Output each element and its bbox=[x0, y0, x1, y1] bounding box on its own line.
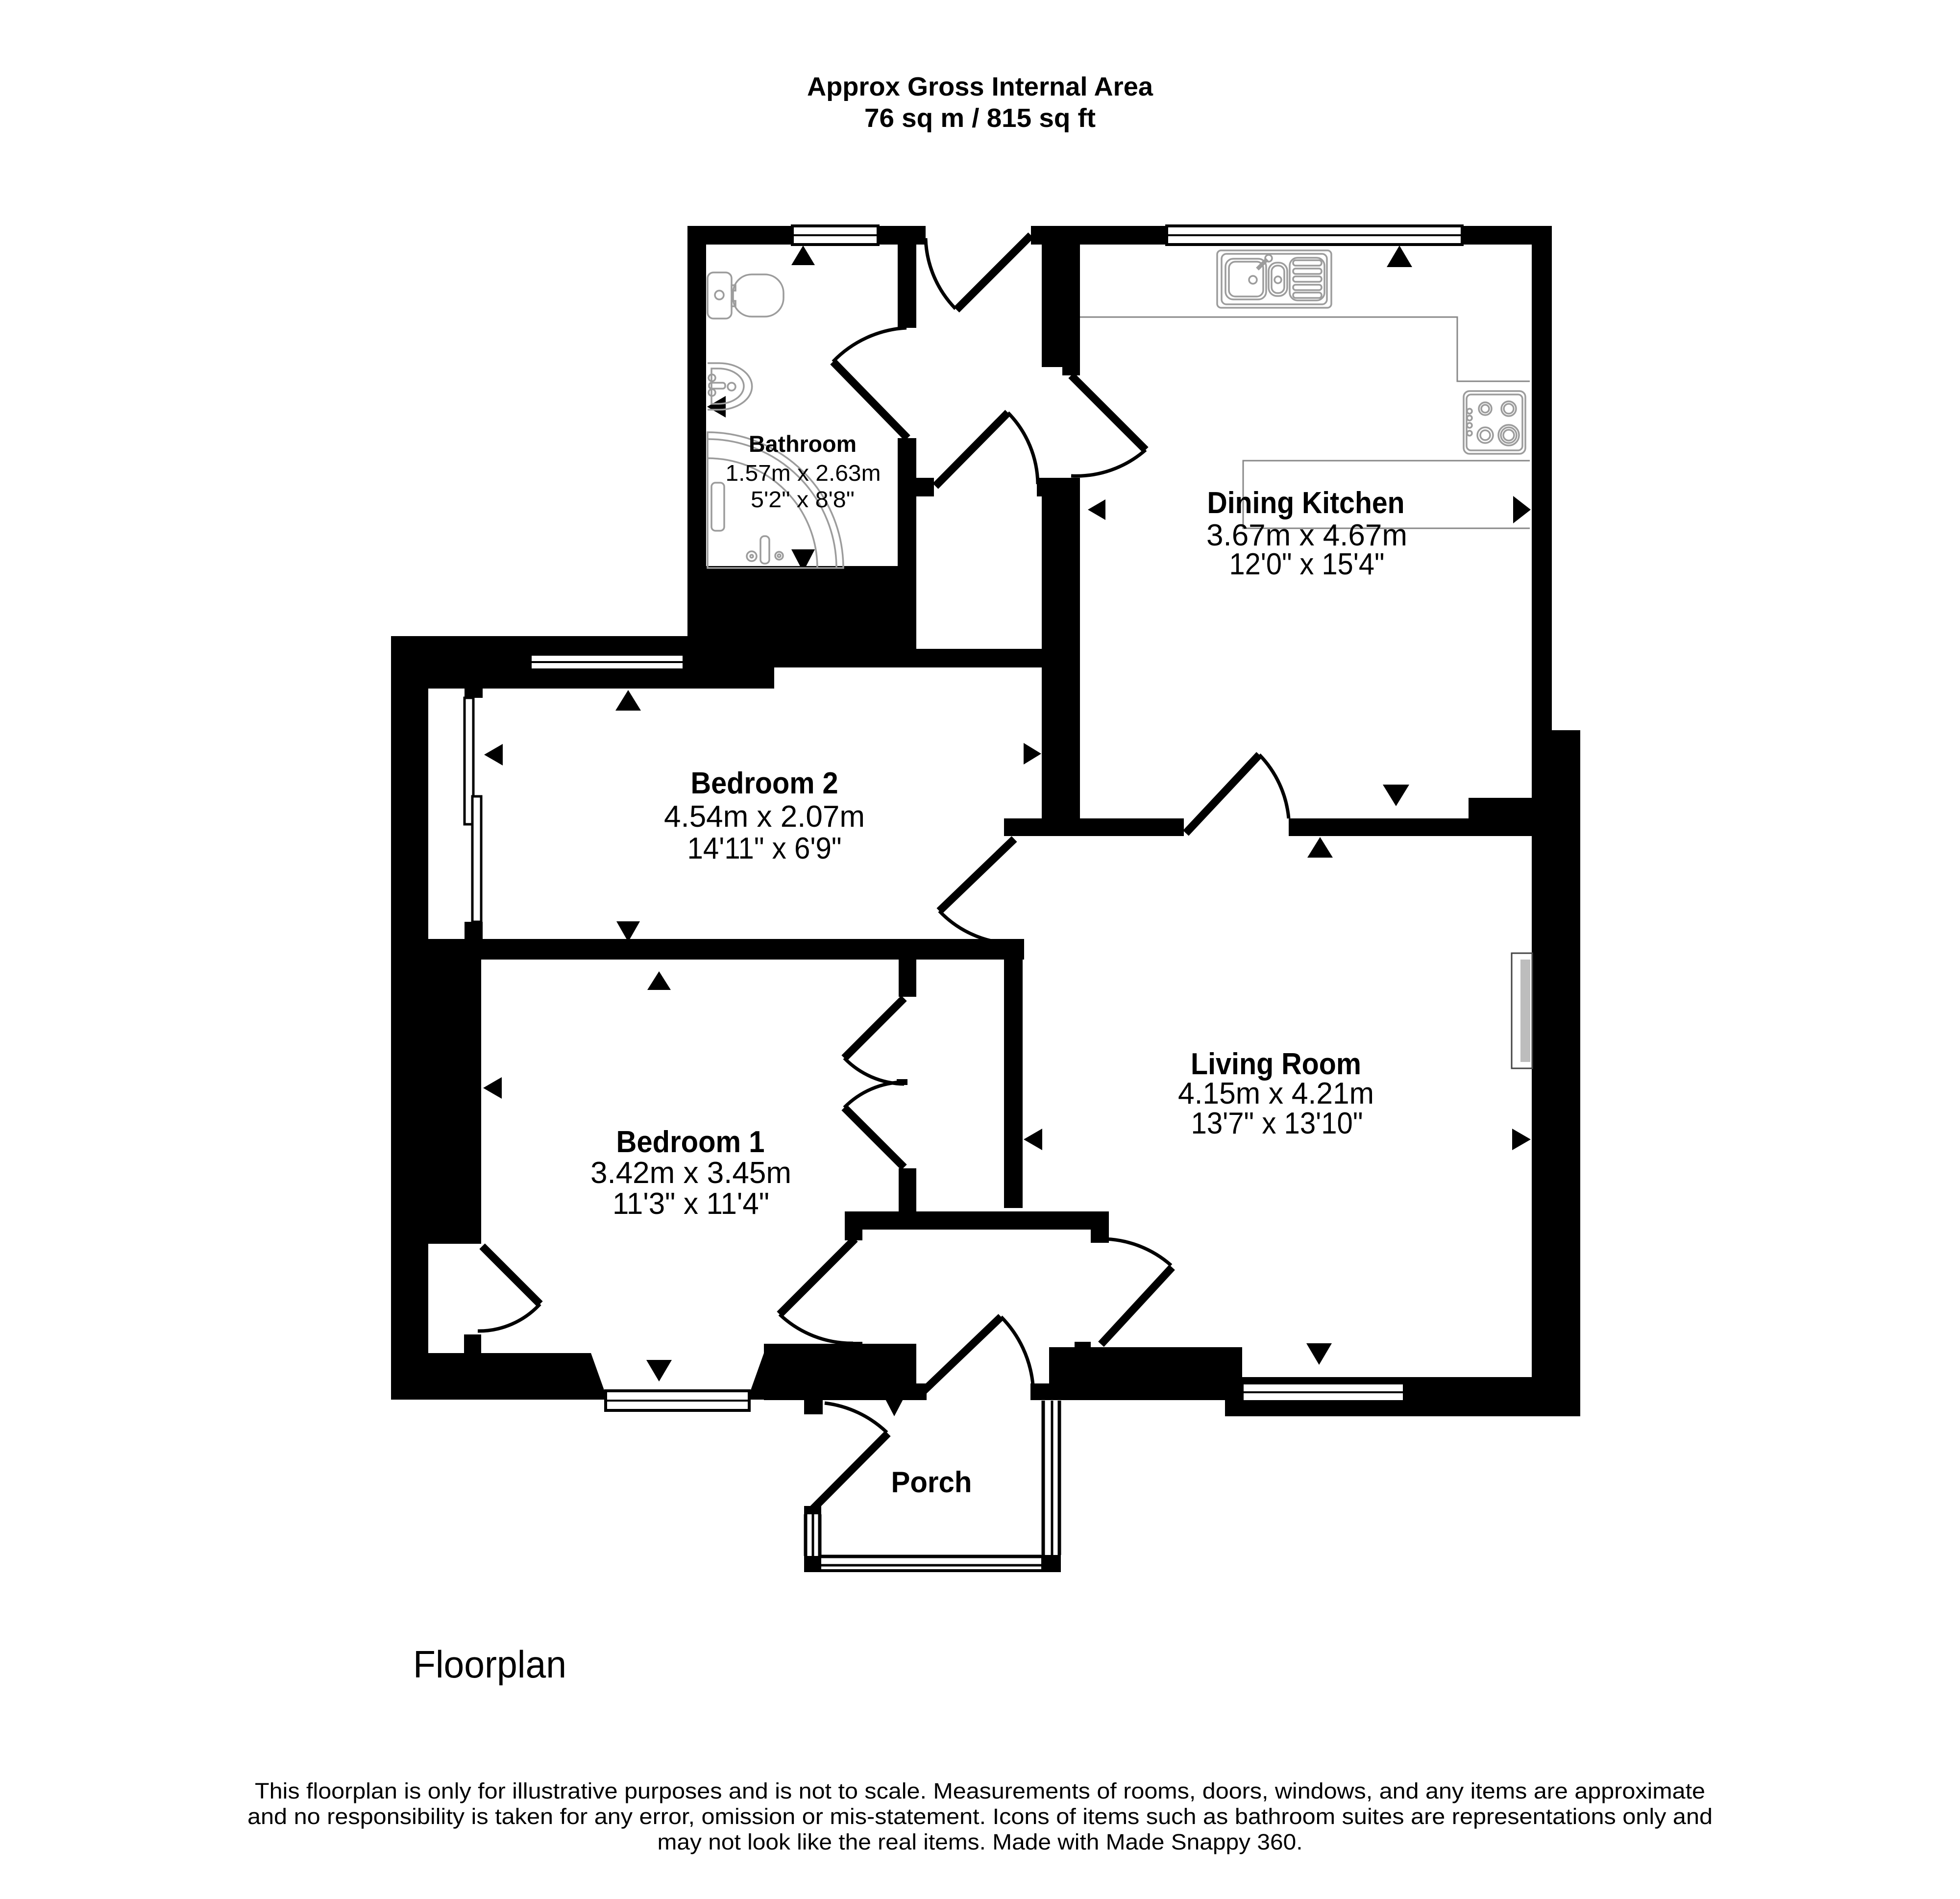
svg-text:Bedroom 1: Bedroom 1 bbox=[616, 1125, 765, 1159]
svg-text:Bedroom 2: Bedroom 2 bbox=[691, 766, 838, 800]
svg-text:Dining Kitchen: Dining Kitchen bbox=[1207, 486, 1405, 520]
svg-text:Porch: Porch bbox=[891, 1466, 972, 1499]
svg-text:14'11" x 6'9": 14'11" x 6'9" bbox=[687, 832, 842, 865]
svg-text:may not look like the real ite: may not look like the real items. Made w… bbox=[658, 1829, 1303, 1854]
svg-text:1.57m x 2.63m: 1.57m x 2.63m bbox=[726, 460, 881, 486]
svg-text:76 sq m / 815 sq ft: 76 sq m / 815 sq ft bbox=[864, 103, 1096, 133]
svg-text:Bathroom: Bathroom bbox=[749, 431, 857, 457]
svg-text:11'3" x 11'4": 11'3" x 11'4" bbox=[612, 1187, 769, 1221]
svg-text:4.54m x 2.07m: 4.54m x 2.07m bbox=[664, 800, 865, 834]
svg-text:Approx Gross Internal Area: Approx Gross Internal Area bbox=[807, 72, 1153, 101]
svg-text:4.15m x 4.21m: 4.15m x 4.21m bbox=[1178, 1077, 1374, 1110]
svg-text:Living Room: Living Room bbox=[1191, 1047, 1361, 1081]
svg-text:12'0" x 15'4": 12'0" x 15'4" bbox=[1229, 547, 1385, 581]
svg-text:3.42m x 3.45m: 3.42m x 3.45m bbox=[590, 1156, 791, 1190]
svg-text:13'7" x 13'10": 13'7" x 13'10" bbox=[1191, 1107, 1363, 1140]
svg-text:This floorplan is only for ill: This floorplan is only for illustrative … bbox=[255, 1778, 1705, 1803]
svg-text:and no responsibility is taken: and no responsibility is taken for any e… bbox=[247, 1804, 1713, 1829]
svg-text:Floorplan: Floorplan bbox=[413, 1643, 566, 1686]
svg-text:5'2" x 8'8": 5'2" x 8'8" bbox=[751, 487, 855, 512]
